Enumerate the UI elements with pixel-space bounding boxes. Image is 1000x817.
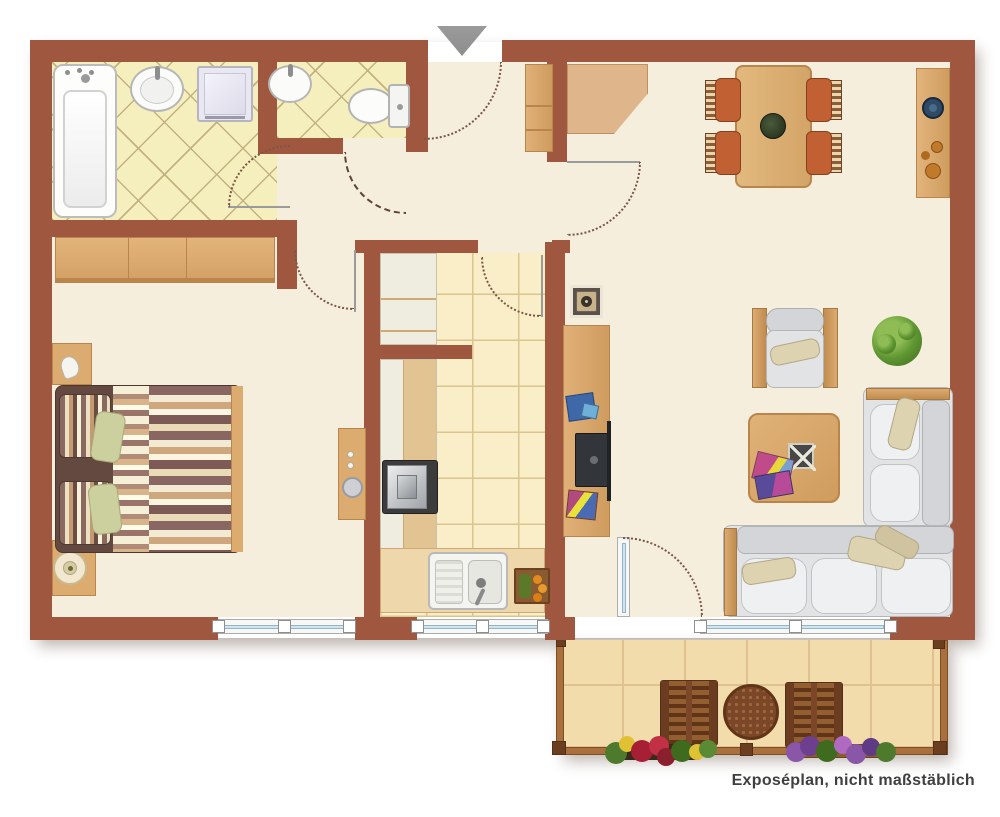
lamp-center	[68, 566, 73, 571]
bedroom-door-leaf	[354, 250, 356, 312]
bathtub-basin	[63, 90, 107, 208]
shower-door	[205, 116, 245, 119]
bathtub-knob	[89, 70, 94, 75]
hall-wardrobe-shelf	[526, 129, 552, 131]
dressing-table-bowl	[342, 477, 363, 498]
wardrobe-divider	[186, 238, 187, 282]
sofa-backrest	[922, 400, 950, 526]
decor-pot	[925, 163, 941, 179]
double-bed	[55, 385, 242, 553]
kitchen-door-leaf	[541, 255, 543, 317]
tv-logo	[590, 456, 598, 464]
wall-bedroom-door-stub	[277, 237, 297, 289]
tray-cross	[790, 445, 816, 471]
crate-orange	[533, 593, 542, 602]
wall-bottom-bedroom	[30, 617, 218, 640]
decor-pot	[931, 141, 943, 153]
sofa-wood-rail	[724, 528, 737, 616]
decor-bowl-inner	[929, 104, 937, 112]
toilet-tank	[388, 84, 410, 128]
speaker	[570, 285, 603, 318]
window-mullion	[212, 620, 225, 633]
bathtub	[53, 64, 117, 218]
sofa-seat-cushion	[811, 558, 877, 614]
dressing-table-item	[347, 451, 354, 458]
tv	[575, 433, 611, 487]
tv-screen-edge	[607, 421, 611, 501]
magazine	[754, 470, 794, 500]
bed-cushion	[87, 482, 123, 535]
bathtub-knob	[65, 70, 70, 75]
wall-top-right	[502, 40, 975, 62]
wardrobe-front-edge	[56, 278, 274, 282]
bathtub-faucet	[81, 74, 90, 83]
speaker-dot	[585, 300, 588, 303]
wall-right	[950, 40, 975, 640]
crate-greens	[519, 574, 531, 598]
wall-left	[30, 40, 52, 640]
decor-bowl-blue	[922, 97, 944, 119]
railing-post	[740, 743, 753, 756]
window-mullion	[278, 620, 291, 633]
window-mullion	[343, 620, 356, 633]
crate-orange	[538, 584, 547, 593]
shower-cabinet	[197, 66, 253, 122]
railing-post	[933, 741, 947, 755]
window-mullion	[476, 620, 489, 633]
duvet	[149, 386, 231, 552]
window-mullion	[789, 620, 802, 633]
kitchen-tall-unit	[380, 359, 437, 549]
window-mullion	[694, 620, 707, 633]
sideboard	[916, 68, 950, 198]
sofa-backrest	[737, 526, 954, 554]
balcony-table	[723, 684, 779, 740]
kitchen-sink	[428, 552, 508, 610]
washbasin-faucet	[288, 64, 293, 77]
floor-plan-canvas: Exposéplan, nicht maßstäblich	[0, 0, 1000, 817]
wall-bedroom-kitchen	[364, 240, 380, 640]
coffee-table	[748, 413, 840, 503]
armchair-arm	[752, 308, 767, 388]
flower	[876, 742, 896, 762]
bedroom-wardrobe	[55, 237, 275, 283]
wall-bath-bedroom	[40, 220, 297, 237]
plan-caption: Exposéplan, nicht maßstäblich	[732, 772, 975, 790]
wall-kitchen-stub	[380, 345, 472, 359]
wardrobe-divider	[128, 238, 129, 282]
bed-foot-rail	[231, 386, 243, 552]
table-centerpiece	[760, 113, 786, 139]
decor-pot	[921, 151, 930, 160]
window-mullion	[537, 620, 550, 633]
produce-crate	[514, 568, 550, 604]
plant-leaf-cluster	[898, 322, 916, 340]
potted-plant	[872, 316, 922, 366]
table-lamp-round	[53, 551, 87, 585]
table-lamp	[58, 354, 82, 381]
dining-chair-seat	[715, 78, 741, 122]
hall-wardrobe	[525, 64, 553, 152]
cabinet-shelf	[381, 298, 436, 300]
sink-drainer	[435, 560, 463, 604]
shower-tray	[204, 73, 246, 115]
kitchen-upper-cabinet	[380, 253, 437, 345]
hall-wardrobe-shelf	[526, 105, 552, 107]
window-mullion	[411, 620, 424, 633]
dining-chair-seat	[715, 131, 741, 175]
stove-hob	[397, 475, 417, 499]
wall-kitchen-living-cap	[552, 240, 570, 253]
flower-box-left-blooms	[605, 736, 720, 766]
flower	[699, 740, 717, 758]
wall-bottom-living-end	[890, 617, 975, 640]
wc-washbasin	[268, 65, 312, 103]
media-case	[581, 402, 600, 419]
wall-top-left	[30, 40, 428, 62]
armchair-arm	[823, 308, 838, 388]
sofa-horizontal-section	[723, 525, 953, 617]
dressing-table	[338, 428, 366, 520]
crate-orange	[533, 575, 542, 584]
balcony-railing-right	[940, 640, 948, 754]
balcony-railing-left	[556, 640, 564, 754]
nightstand-top	[52, 343, 92, 385]
flower-box-right-blooms	[786, 736, 898, 766]
bathtub-knob	[77, 68, 82, 73]
bath-washbasin	[130, 66, 184, 112]
stove	[382, 460, 438, 514]
railing-post	[552, 741, 566, 755]
plant-leaf-cluster	[876, 334, 896, 354]
sofa-seat-cushion	[870, 464, 920, 522]
dining-chair-seat	[806, 131, 832, 175]
tv-lowboard	[563, 325, 610, 537]
washbasin-bowl	[140, 76, 174, 104]
dressing-table-item	[347, 462, 354, 469]
dining-chair-seat	[806, 78, 832, 122]
window-mullion	[884, 620, 897, 633]
magazines	[566, 490, 599, 521]
sofa-vertical-section	[863, 387, 953, 527]
cabinet-shelf	[381, 330, 436, 332]
washbasin-faucet	[155, 66, 160, 80]
kitchen-counter-strip	[403, 360, 436, 548]
sink-faucet	[476, 578, 486, 588]
toilet-flush-button	[397, 104, 403, 110]
